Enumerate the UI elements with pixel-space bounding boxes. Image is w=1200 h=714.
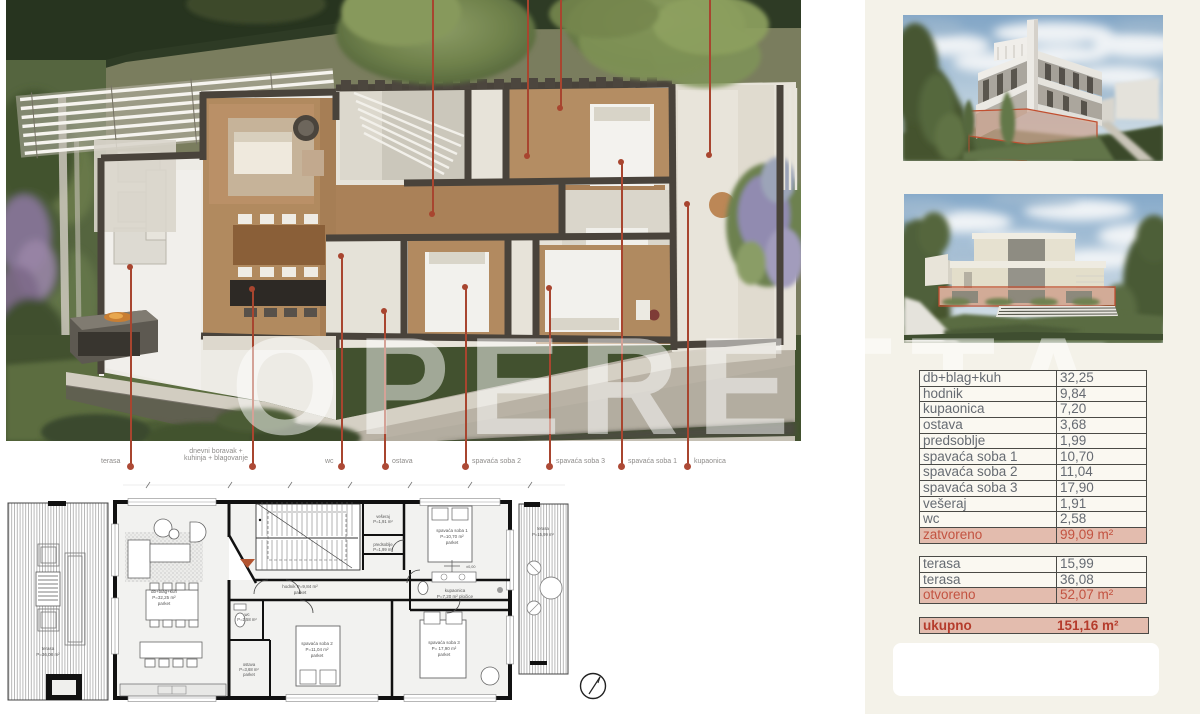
svg-text:P=2,58 m²: P=2,58 m² [237, 617, 257, 622]
svg-text:P=36,08 m²: P=36,08 m² [36, 652, 60, 657]
svg-text:spavaća soba 2: spavaća soba 2 [301, 641, 333, 646]
svg-text:P=1,99 m²: P=1,99 m² [373, 547, 393, 552]
svg-text:P=32,25 m²: P=32,25 m² [152, 595, 176, 600]
svg-text:kupaonica: kupaonica [445, 588, 466, 593]
svg-text:parket: parket [311, 653, 324, 658]
svg-text:db+blag+kuh: db+blag+kuh [151, 589, 178, 594]
svg-text:P= 17,90 m²: P= 17,90 m² [432, 646, 457, 651]
svg-text:P=7,20 m² pločice: P=7,20 m² pločice [437, 594, 474, 599]
svg-text:parket: parket [438, 652, 451, 657]
svg-text:spavaća soba 1: spavaća soba 1 [436, 528, 468, 533]
svg-text:parket: parket [446, 540, 459, 545]
svg-text:parket: parket [294, 590, 307, 595]
svg-text:terasa: terasa [42, 646, 55, 651]
svg-text:terasa: terasa [537, 526, 549, 531]
svg-text:P=11,04 m²: P=11,04 m² [305, 647, 329, 652]
svg-text:parket: parket [158, 601, 171, 606]
svg-text:hodnik P=9,84 m²: hodnik P=9,84 m² [282, 584, 318, 589]
svg-text:P=1,91 m²: P=1,91 m² [373, 519, 393, 524]
svg-text:P=15,99 m²: P=15,99 m² [532, 532, 554, 537]
svg-text:parket: parket [243, 672, 255, 677]
svg-text:±0,00: ±0,00 [466, 565, 475, 569]
svg-text:spavaća soba 3: spavaća soba 3 [428, 640, 460, 645]
svg-text:P=10,70 m²: P=10,70 m² [440, 534, 464, 539]
